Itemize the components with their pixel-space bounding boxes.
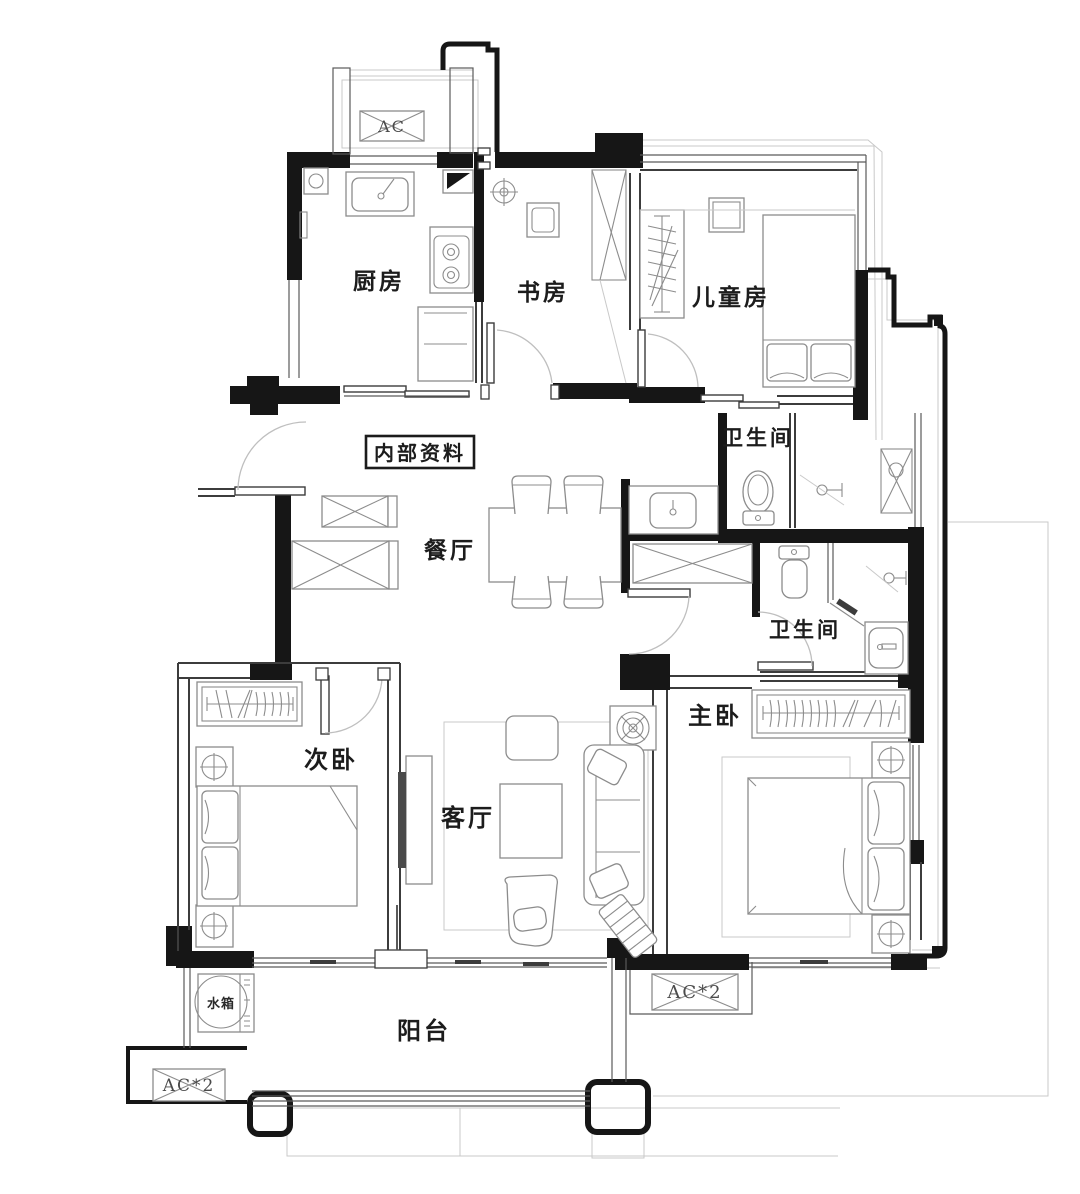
toilet-lower: [779, 546, 809, 559]
toilet-upper: [743, 471, 773, 513]
second-bedroom-furniture: [196, 682, 357, 947]
dining-chair: [564, 576, 603, 608]
second-bedroom-door: [321, 676, 329, 734]
armchair: [505, 875, 557, 946]
kids-nightstand: [709, 198, 744, 232]
shower-door: [836, 598, 858, 615]
dining-table: [489, 508, 621, 582]
floor-plan-page: 厨房 书房 儿童房 卫生间 餐厅 卫生间 次卧 客厅 主卧 阳台 水箱 AC*2…: [0, 0, 1080, 1194]
ac-top-label: AC: [377, 117, 406, 136]
study-furniture: [490, 170, 626, 383]
study-door: [487, 323, 494, 383]
dining-furniture: [489, 476, 621, 608]
watermark-stamp: 内部资料: [366, 436, 474, 468]
dining-chair: [512, 476, 551, 514]
kids-room-door: [638, 330, 645, 387]
dining-chair: [512, 576, 551, 608]
bathroom-lower-fixtures: [779, 543, 908, 674]
room-label-living: 客厅: [441, 803, 495, 832]
room-label-second-bedroom: 次卧: [304, 745, 358, 774]
bathroom-upper-fixtures: [743, 449, 912, 525]
tv-console: [406, 756, 432, 884]
room-label-bath-lower: 卫生间: [769, 617, 841, 642]
bathroom-lower-door: [758, 662, 813, 670]
living-furniture: [398, 706, 658, 959]
room-labels: 厨房 书房 儿童房 卫生间 餐厅 卫生间 次卧 客厅 主卧 阳台 水箱 AC*2…: [162, 117, 841, 1096]
entry-cabinets: [292, 496, 398, 589]
room-label-kitchen: 厨房: [353, 268, 405, 295]
room-label-bath-upper: 卫生间: [722, 425, 794, 450]
ac-right-label: AC*2: [666, 982, 722, 1003]
room-label-study: 书房: [517, 279, 569, 306]
room-label-kids: 儿童房: [692, 284, 770, 311]
hall-door: [628, 589, 690, 597]
water-tank-label: 水箱: [207, 996, 235, 1012]
room-label-master: 主卧: [688, 701, 742, 730]
master-furniture: [722, 690, 910, 953]
coffee-table: [500, 784, 562, 858]
kitchen-sliding-door: [344, 386, 406, 392]
side-table: [506, 716, 558, 760]
bathroom-upper-sliding-door: [701, 395, 743, 401]
ac-left-label: AC*2: [162, 1076, 216, 1096]
watermark-text: 内部资料: [374, 441, 466, 465]
floor-plan-drawing: 厨房 书房 儿童房 卫生间 餐厅 卫生间 次卧 客厅 主卧 阳台 水箱 AC*2…: [0, 0, 1080, 1194]
master-wardrobe: [752, 690, 910, 738]
tv: [398, 772, 406, 868]
entry-door: [235, 487, 305, 495]
room-label-dining: 餐厅: [424, 537, 476, 564]
room-label-balcony: 阳台: [397, 1016, 451, 1045]
dining-chair: [564, 476, 603, 514]
